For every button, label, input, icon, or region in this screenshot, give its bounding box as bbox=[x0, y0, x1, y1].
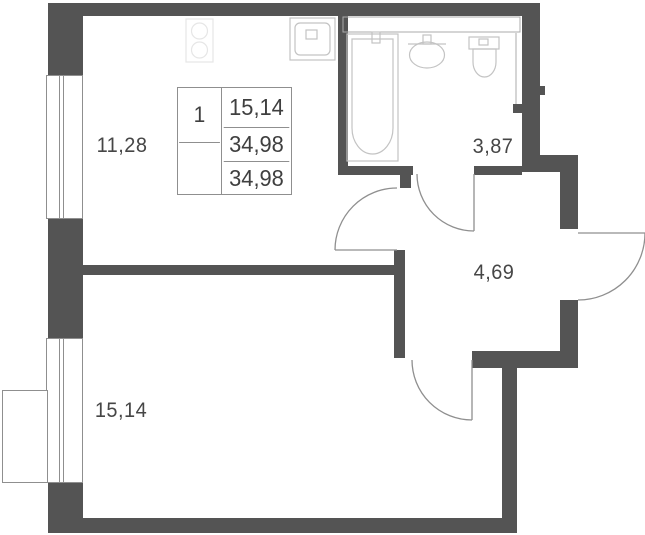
living-room-door bbox=[335, 188, 397, 250]
rooms-count-cell: 1 bbox=[179, 88, 220, 143]
bedroom-door bbox=[412, 360, 472, 420]
kitchen-sink-icon bbox=[290, 18, 335, 60]
area-table: 1 15,14 34,98 34,98 bbox=[177, 87, 292, 195]
total-area-cell: 34,98 bbox=[224, 128, 290, 162]
room-label-living: 11,28 bbox=[97, 134, 148, 158]
stove-icon bbox=[186, 19, 213, 62]
entrance-door bbox=[578, 233, 645, 300]
room-label-bedroom: 15,14 bbox=[95, 399, 147, 423]
vent-duct bbox=[343, 17, 520, 104]
overall-area-cell: 34,98 bbox=[224, 162, 290, 194]
room-label-bathroom: 3,87 bbox=[473, 135, 514, 159]
floor-plan: 11,28 3,87 4,69 15,14 1 15,14 34,98 34,9… bbox=[0, 0, 645, 535]
sink-icon bbox=[408, 35, 446, 68]
bathroom-door bbox=[417, 174, 474, 231]
living-area-cell: 15,14 bbox=[224, 88, 290, 128]
empty-cell bbox=[179, 143, 220, 194]
area-table-right-column: 15,14 34,98 34,98 bbox=[222, 88, 291, 194]
plan-overlay bbox=[0, 0, 645, 535]
room-label-hall: 4,69 bbox=[474, 261, 515, 285]
area-table-left-column: 1 bbox=[178, 88, 222, 194]
toilet-icon bbox=[469, 37, 499, 77]
bathtub-icon bbox=[347, 32, 398, 161]
